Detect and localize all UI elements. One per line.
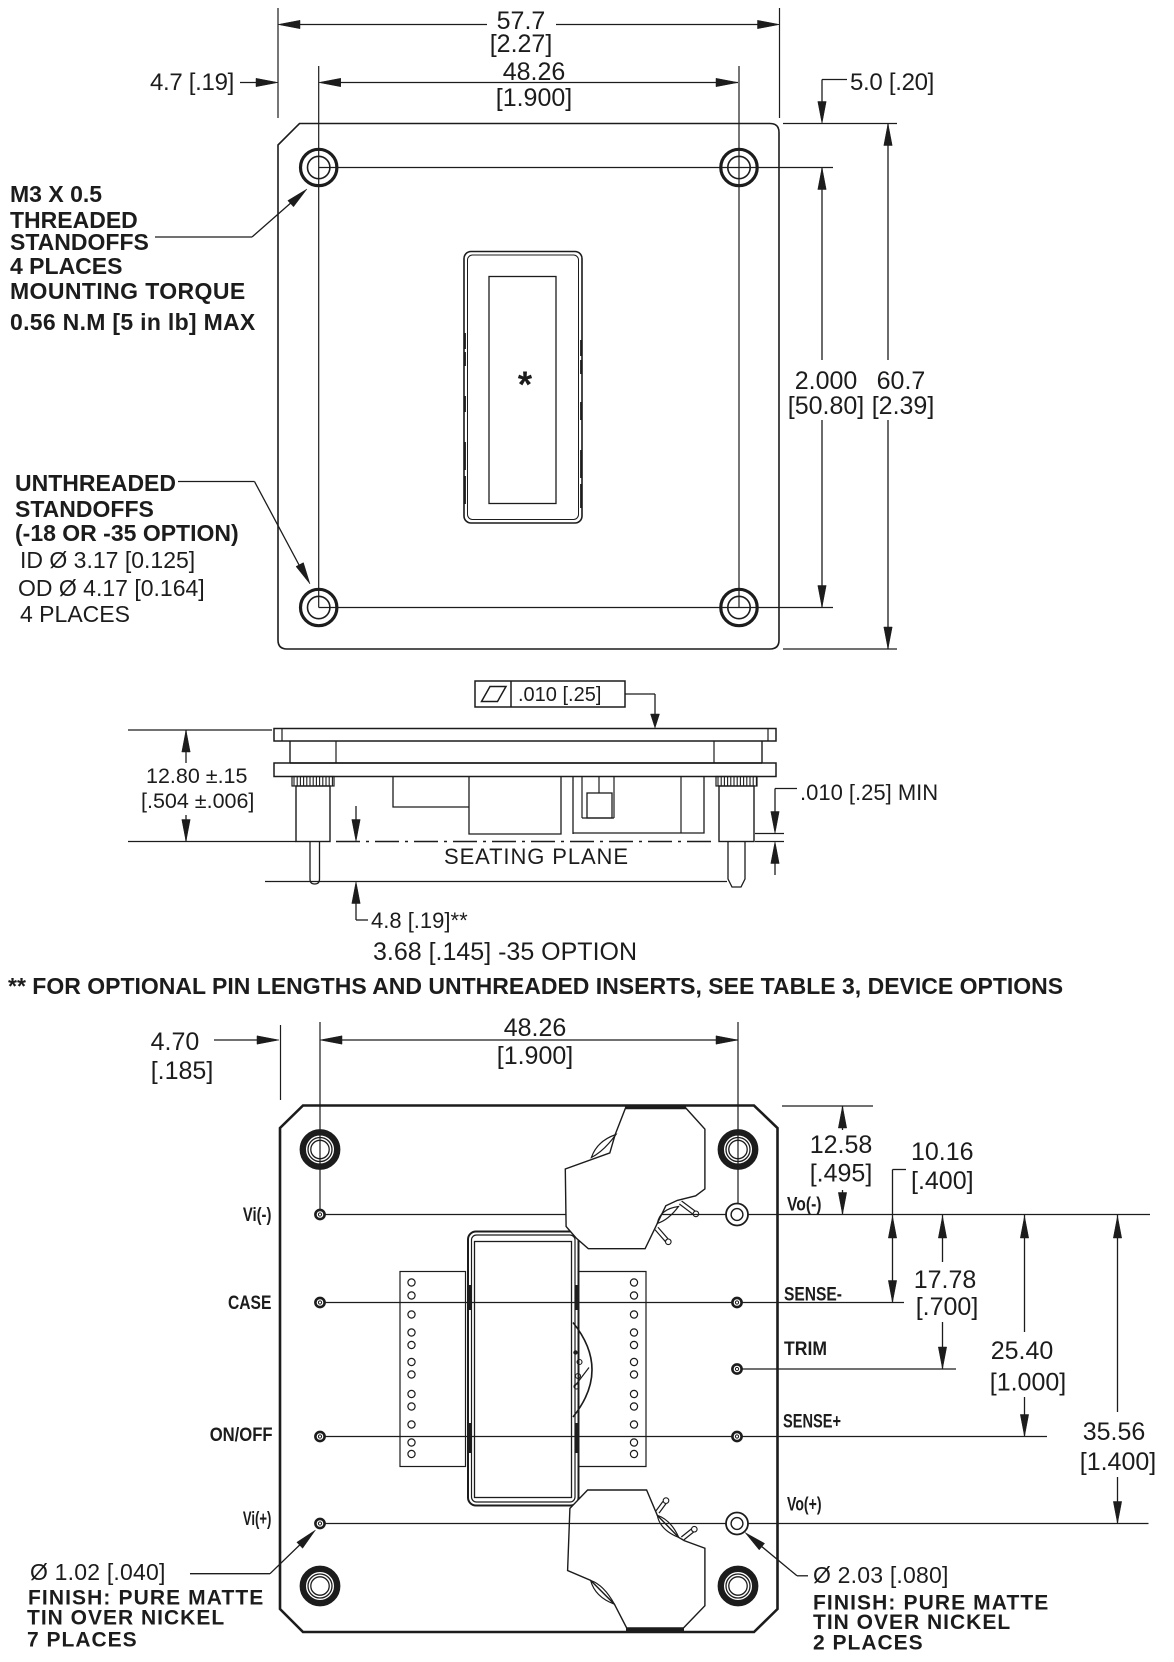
svg-text:3.68 [.145] -35 OPTION: 3.68 [.145] -35 OPTION — [373, 938, 637, 966]
svg-text:TRIM: TRIM — [784, 1339, 827, 1360]
svg-text:[2.39]: [2.39] — [872, 392, 935, 420]
svg-text:4 PLACES: 4 PLACES — [20, 601, 130, 627]
svg-text:SENSE+: SENSE+ — [783, 1412, 841, 1433]
svg-text:4.70: 4.70 — [151, 1028, 200, 1056]
svg-text:[1.900]: [1.900] — [496, 84, 572, 112]
svg-text:*: * — [518, 364, 533, 405]
svg-text:[1.900]: [1.900] — [497, 1042, 573, 1070]
svg-text:(-18 OR -35 OPTION): (-18 OR -35 OPTION) — [15, 520, 239, 546]
svg-text:[2.27]: [2.27] — [490, 30, 553, 58]
svg-text:[50.80]: [50.80] — [788, 392, 864, 420]
svg-text:SEATING PLANE: SEATING PLANE — [444, 844, 629, 869]
svg-text:Ø 2.03 [.080]: Ø 2.03 [.080] — [813, 1562, 949, 1588]
svg-text:4 PLACES: 4 PLACES — [10, 253, 122, 279]
svg-text:STANDOFFS: STANDOFFS — [15, 496, 154, 522]
svg-text:Vi(+): Vi(+) — [243, 1509, 272, 1530]
svg-text:M3 X 0.5: M3 X 0.5 — [10, 181, 102, 207]
svg-text:7 PLACES: 7 PLACES — [27, 1629, 138, 1652]
svg-text:12.58: 12.58 — [810, 1131, 873, 1159]
svg-text:2.000: 2.000 — [795, 367, 858, 395]
svg-text:Vo(-): Vo(-) — [787, 1195, 822, 1216]
svg-text:.010 [.25] MIN: .010 [.25] MIN — [800, 780, 938, 805]
svg-text:UNTHREADED: UNTHREADED — [15, 470, 176, 496]
svg-text:4.7 [.19]: 4.7 [.19] — [150, 69, 234, 96]
svg-text:10.16: 10.16 — [911, 1138, 974, 1166]
svg-text:0.56 N.M [5 in lb] MAX: 0.56 N.M [5 in lb] MAX — [10, 309, 256, 335]
svg-text:ON/OFF: ON/OFF — [210, 1425, 273, 1446]
svg-text:[.185]: [.185] — [151, 1057, 214, 1085]
svg-text:Vo(+): Vo(+) — [787, 1495, 822, 1516]
svg-text:4.8 [.19]**: 4.8 [.19]** — [371, 908, 468, 933]
svg-text:60.7: 60.7 — [877, 367, 926, 395]
svg-text:** FOR OPTIONAL PIN LENGTHS AN: ** FOR OPTIONAL PIN LENGTHS AND UNTHREAD… — [8, 973, 1063, 999]
svg-text:25.40: 25.40 — [991, 1337, 1054, 1365]
svg-text:[1.000]: [1.000] — [990, 1369, 1066, 1397]
svg-text:[.400]: [.400] — [911, 1167, 974, 1195]
svg-text:[.504 ±.006]: [.504 ±.006] — [141, 789, 254, 813]
svg-text:OD Ø 4.17 [0.164]: OD Ø 4.17 [0.164] — [18, 575, 205, 601]
svg-text:48.26: 48.26 — [504, 1014, 567, 1042]
svg-text:STANDOFFS: STANDOFFS — [10, 229, 149, 255]
svg-text:17.78: 17.78 — [914, 1266, 977, 1294]
svg-text:[1.400]: [1.400] — [1080, 1448, 1156, 1476]
svg-text:TIN OVER NICKEL: TIN OVER NICKEL — [27, 1607, 225, 1630]
svg-text:MOUNTING TORQUE: MOUNTING TORQUE — [10, 278, 246, 304]
svg-text:Vi(-): Vi(-) — [243, 1205, 272, 1226]
svg-text:5.0 [.20]: 5.0 [.20] — [850, 69, 934, 96]
svg-text:SENSE-: SENSE- — [784, 1285, 842, 1306]
svg-text:2 PLACES: 2 PLACES — [813, 1632, 924, 1655]
svg-text:35.56: 35.56 — [1083, 1418, 1146, 1446]
svg-text:48.26: 48.26 — [503, 58, 566, 86]
svg-text:Ø 1.02 [.040]: Ø 1.02 [.040] — [30, 1559, 166, 1585]
svg-text:12.80 ±.15: 12.80 ±.15 — [146, 764, 248, 788]
svg-text:[.495]: [.495] — [810, 1160, 873, 1188]
svg-text:[.700]: [.700] — [916, 1293, 979, 1321]
svg-text:CASE: CASE — [228, 1293, 271, 1314]
svg-text:.010 [.25]: .010 [.25] — [518, 684, 601, 706]
svg-text:ID Ø 3.17 [0.125]: ID Ø 3.17 [0.125] — [20, 547, 195, 573]
